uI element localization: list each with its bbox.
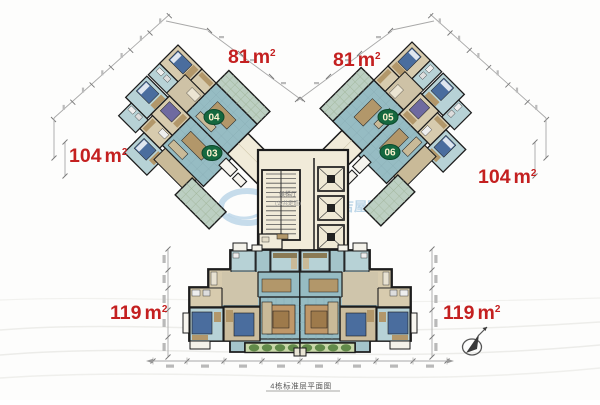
- svg-text:81m2: 81m2: [333, 49, 381, 71]
- svg-text:04: 04: [208, 113, 220, 124]
- svg-text:06: 06: [384, 148, 396, 159]
- svg-text:4栋标准层平面图: 4栋标准层平面图: [270, 381, 331, 391]
- svg-text:05: 05: [382, 113, 394, 124]
- svg-text:119m2: 119m2: [443, 302, 501, 324]
- svg-text:104m2: 104m2: [69, 145, 128, 167]
- svg-text:104m2: 104m2: [478, 166, 537, 188]
- svg-text:候梯厅: 候梯厅: [279, 190, 297, 198]
- svg-text:(公共走道): (公共走道): [275, 199, 301, 207]
- svg-text:03: 03: [206, 149, 218, 160]
- svg-text:119m2: 119m2: [110, 302, 168, 324]
- svg-text:81m2: 81m2: [228, 46, 276, 68]
